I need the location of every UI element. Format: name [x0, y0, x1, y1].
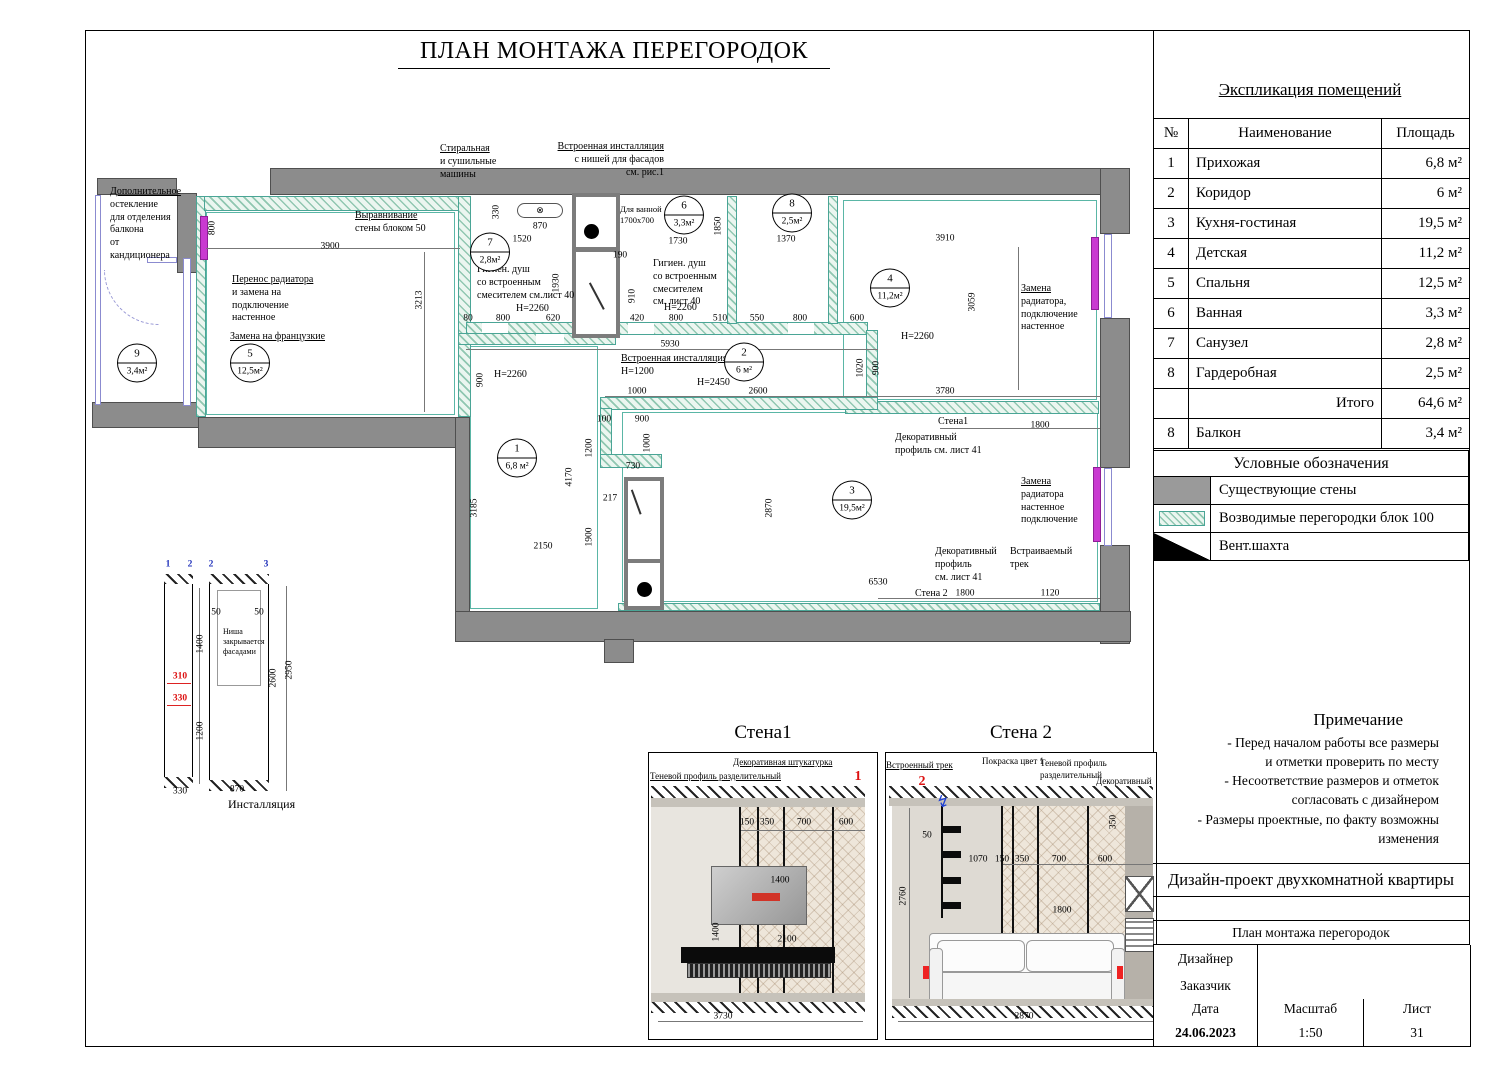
- dimension-label: 3059: [968, 293, 978, 312]
- drawing-sheet: ПЛАН МОНТАЖА ПЕРЕГОРОДОК: [0, 0, 1505, 1066]
- dimension-label: 217: [603, 494, 617, 504]
- floor-band: [892, 999, 1153, 1006]
- dimension-label: 1070: [969, 855, 988, 865]
- annotation-text: Встроенный трек: [886, 760, 966, 772]
- shelf: [941, 851, 961, 858]
- sofa-seat: [937, 972, 1117, 1000]
- dimension-label: 1400: [196, 635, 206, 654]
- dimension-label: 1120: [1041, 589, 1060, 599]
- dimension-label: 2100: [778, 935, 797, 945]
- wall-swatch: [1154, 477, 1210, 504]
- room-marker: 16,8 м²: [497, 439, 537, 478]
- note-line: - Размеры проектные, по факту возможны: [1165, 810, 1439, 829]
- partition-segment: [845, 401, 1099, 414]
- dim-line: [741, 830, 865, 831]
- room-marker: 319,5м²: [832, 481, 872, 520]
- annotation-text: Заменарадиатора,подключениенастенное: [1021, 283, 1083, 334]
- dimension-label: 420: [630, 314, 644, 324]
- window: [1104, 234, 1112, 318]
- wall-segment: [455, 417, 470, 634]
- annotation-text: Н=2260: [664, 302, 710, 315]
- ceiling-band: [889, 798, 1153, 806]
- sofa-cushion: [937, 940, 1025, 972]
- dimension-label: 5930: [661, 340, 680, 350]
- table-row: 8Гардеробная2,5 м²: [1154, 359, 1470, 389]
- hatch-band: [164, 574, 193, 584]
- dimension-label: 1730: [669, 237, 688, 247]
- appliance-front: [1125, 918, 1154, 952]
- room-marker: 82,5м²: [772, 194, 812, 233]
- titleblock-meta-values: 24.06.2023 1:50 31: [1153, 1019, 1471, 1047]
- dimension-label: 870: [533, 222, 547, 232]
- vent-dot: [584, 224, 599, 239]
- client-label: Заказчик: [1154, 972, 1258, 999]
- wall-segment: [198, 417, 458, 448]
- table-cell: 6 м²: [1382, 179, 1470, 209]
- wall-segment: [455, 611, 1131, 642]
- table-cell: Балкон: [1189, 419, 1382, 449]
- dimension-label: 50: [254, 608, 264, 618]
- dimension-label: 800: [669, 314, 683, 324]
- oven-front: [1125, 876, 1154, 912]
- titleblock-empty-row: [1153, 897, 1469, 921]
- table-cell: 7: [1154, 329, 1189, 359]
- dimension-label: 1020: [856, 359, 866, 378]
- radiator: [1091, 237, 1099, 310]
- table-cell: Детская: [1189, 239, 1382, 269]
- french-window: [183, 258, 191, 406]
- dimension-label: 2: [188, 560, 193, 570]
- sheet-value: 31: [1364, 1019, 1470, 1046]
- dimension-label: 1800: [1053, 906, 1072, 916]
- table-cell: 3,4 м²: [1382, 419, 1470, 449]
- page-title: ПЛАН МОНТАЖА ПЕРЕГОРОДОК: [398, 38, 830, 69]
- dimension-label: 700: [797, 818, 811, 828]
- door-opening: [628, 323, 654, 334]
- table-row: 5Спальня12,5 м²: [1154, 269, 1470, 299]
- dimension-label: 3730: [714, 1012, 733, 1022]
- dim-line: [199, 588, 200, 784]
- floor-band: [651, 993, 865, 1002]
- table-row: Итого64,6 м²: [1154, 389, 1470, 419]
- dimension-label: 1: [166, 560, 171, 570]
- partition-swatch: [1159, 511, 1205, 526]
- table-cell: 8: [1154, 419, 1189, 449]
- shelf: [941, 902, 961, 909]
- dim-line: [878, 598, 1100, 599]
- table-header-row: № Наименование Площадь: [1154, 119, 1470, 149]
- dimension-label: 330: [173, 787, 187, 797]
- table-cell: 11,2 м²: [1382, 239, 1470, 269]
- table-row: 6Ванная3,3 м²: [1154, 299, 1470, 329]
- annotation-text: Дополнительноеостеклениедля отделениябал…: [110, 186, 180, 263]
- notes-block: Примечание - Перед началом работы все ра…: [1165, 710, 1455, 848]
- ceiling-hatch: [651, 786, 865, 798]
- red-dim-line: [167, 683, 191, 684]
- table-cell: 5: [1154, 269, 1189, 299]
- red-dim-line: [167, 705, 191, 706]
- media-console: [681, 947, 835, 963]
- dimension-label: 1200: [196, 722, 206, 741]
- annotation-text: Заменарадиаторанастенноеподключение: [1021, 476, 1083, 527]
- wall-segment: [604, 639, 634, 663]
- partition-segment: [204, 196, 460, 211]
- dimension-label: 3910: [936, 234, 955, 244]
- table-cell: 6,8 м²: [1382, 149, 1470, 179]
- dimension-label: 80: [463, 314, 473, 324]
- dimension-label: 330: [492, 205, 502, 219]
- doc-title: План монтажа перегородок: [1232, 925, 1390, 941]
- date-label: Дата: [1154, 999, 1258, 1019]
- sheet-label: Лист: [1364, 999, 1470, 1019]
- table-cell: 4: [1154, 239, 1189, 269]
- dimension-label: 2600: [269, 669, 279, 688]
- dimension-label: 1200: [585, 439, 595, 458]
- profile-line: [832, 807, 834, 996]
- annotation-text: Замена на французкие: [230, 331, 345, 344]
- dimension-label: 1: [855, 770, 862, 784]
- outlet-mark: [1117, 966, 1123, 979]
- dim-line: [286, 586, 287, 791]
- dimension-label: 330: [173, 694, 187, 704]
- annotation-text: Стена 2: [915, 588, 957, 601]
- dimension-label: 50: [211, 608, 221, 618]
- dimension-label: 870: [230, 785, 244, 795]
- dimension-label: 730: [626, 462, 640, 472]
- annotation-text: Встроенная инсталляцияс нишей для фасадо…: [548, 141, 664, 179]
- table-cell: 2,8 м²: [1382, 329, 1470, 359]
- room-marker: 26 м²: [724, 343, 764, 382]
- dimension-label: 2: [209, 560, 214, 570]
- legend-title: Условные обозначения: [1153, 450, 1469, 477]
- table-cell: Гардеробная: [1189, 359, 1382, 389]
- notes-title: Примечание: [1165, 710, 1455, 730]
- dimension-label: 800: [793, 314, 807, 324]
- wall-segment: [1100, 168, 1130, 234]
- dimension-label: 190: [613, 251, 627, 261]
- room-marker: 411,2м²: [870, 269, 910, 308]
- room-marker: 63,3м²: [664, 196, 704, 235]
- annotation-text: Н=2260: [494, 369, 540, 382]
- dimension-label: 350: [1015, 855, 1029, 865]
- annotation-text: Встроенная инсталляцияН=1200: [621, 353, 739, 379]
- titleblock-designer-row: Дизайнер: [1153, 945, 1471, 973]
- designer-label: Дизайнер: [1154, 945, 1258, 972]
- dimension-label: 900: [872, 361, 882, 375]
- hatch-band: [209, 574, 269, 584]
- dimension-label: 900: [476, 373, 486, 387]
- explication-table: № Наименование Площадь 1Прихожая6,8 м²2К…: [1153, 118, 1470, 449]
- partition-segment: [828, 196, 838, 324]
- table-cell: 2: [1154, 179, 1189, 209]
- titleblock-project: Дизайн-проект двухкомнатной квартиры: [1153, 863, 1469, 897]
- dimension-label: 3900: [321, 242, 340, 252]
- dimension-label: 2600: [749, 387, 768, 397]
- annotation-text: Выравниваниестены блоком 50: [355, 210, 439, 236]
- elevation-title-wall1: Стена1: [648, 722, 878, 744]
- table-cell: Кухня-гостиная: [1189, 209, 1382, 239]
- ceiling-band: [651, 798, 865, 807]
- annotation-text: Инсталляция: [228, 797, 320, 812]
- legend-swatch-cell: [1154, 533, 1211, 560]
- table-cell: 12,5 м²: [1382, 269, 1470, 299]
- dimension-label: 1800: [1031, 421, 1050, 431]
- window: [1104, 468, 1112, 546]
- shelf: [941, 877, 961, 884]
- legend-label: Вент.шахта: [1211, 533, 1468, 560]
- window: [95, 195, 101, 405]
- dimension-label: 700: [1052, 855, 1066, 865]
- legend-item: Существующие стены: [1153, 477, 1469, 505]
- dimension-label: 350: [760, 818, 774, 828]
- floor-hatch: [651, 1002, 865, 1013]
- radiator: [1093, 467, 1101, 542]
- dim-line: [658, 1021, 863, 1022]
- dimension-label: 4170: [565, 468, 575, 487]
- outlet-mark: [923, 966, 929, 979]
- dimension-label: 800: [496, 314, 510, 324]
- legend-item: Вент.шахта: [1153, 533, 1469, 561]
- dim-line: [424, 252, 425, 412]
- partition-segment: [600, 397, 878, 410]
- scale-value: 1:50: [1258, 1019, 1364, 1046]
- dimension-label: 6530: [869, 578, 888, 588]
- dimension-label: 50: [922, 831, 932, 841]
- door-opening: [536, 334, 564, 344]
- dim-line: [1018, 247, 1019, 390]
- dimension-label: 310: [173, 672, 187, 682]
- annotation-text: Теневой профиль разделительный: [650, 771, 802, 783]
- legend: Условные обозначения Существующие стеныВ…: [1153, 450, 1469, 561]
- legend-label: Возводимые перегородки блок 100: [1211, 505, 1468, 532]
- titleblock-meta-header: Дата Масштаб Лист: [1153, 999, 1471, 1020]
- wall-segment: [1100, 318, 1130, 468]
- tv-display: [752, 893, 780, 901]
- dimension-label: 3780: [936, 387, 955, 397]
- room-marker: 93,4м²: [117, 344, 157, 383]
- dimension-label: 350: [1109, 815, 1119, 829]
- dimension-label: 2870: [1015, 1012, 1034, 1022]
- sofa-armrest: [929, 948, 943, 1004]
- dimension-label: 600: [850, 314, 864, 324]
- installation-shaft: [572, 193, 620, 338]
- dimension-label: 2870: [765, 499, 775, 518]
- table-cell: [1154, 389, 1189, 419]
- table-cell: 64,6 м²: [1382, 389, 1470, 419]
- table-row: 3Кухня-гостиная19,5 м²: [1154, 209, 1470, 239]
- dimension-label: 1000: [628, 387, 647, 397]
- table-cell: Коридор: [1189, 179, 1382, 209]
- col-header-name: Наименование: [1189, 119, 1382, 149]
- designer-value: [1258, 945, 1470, 972]
- table-cell: 1: [1154, 149, 1189, 179]
- dim-line: [909, 808, 910, 998]
- console-front: [687, 963, 831, 978]
- dimension-label: 150: [740, 818, 754, 828]
- table-cell: 8: [1154, 359, 1189, 389]
- annotation-text: Декоративный: [1096, 776, 1154, 788]
- elevation-title-wall2: Стена 2: [885, 722, 1157, 744]
- dimension-label: 1850: [714, 217, 724, 236]
- vent-swatch: [1154, 533, 1210, 560]
- table-row: 1Прихожая6,8 м²: [1154, 149, 1470, 179]
- dimension-label: 1000: [643, 434, 653, 453]
- table-cell: Итого: [1189, 389, 1382, 419]
- dimension-label: 3213: [415, 291, 425, 310]
- date-value: 24.06.2023: [1154, 1019, 1258, 1046]
- scale-label: Масштаб: [1258, 999, 1364, 1019]
- annotation-text: Н=2260: [516, 303, 562, 316]
- dimension-label: 2150: [534, 542, 553, 552]
- annotation-text: Нишазакрываетсяфасадами: [223, 627, 269, 658]
- dimension-label: 600: [1098, 855, 1112, 865]
- door-opening: [788, 323, 814, 334]
- table-row: 8Балкон3,4 м²: [1154, 419, 1470, 449]
- dimension-label: 2760: [899, 887, 909, 906]
- vent-dot: [637, 582, 652, 597]
- dimension-label: 510: [713, 314, 727, 324]
- dimension-label: 1400: [712, 923, 722, 942]
- annotation-text: Декоративныйпрофиль см. лист 41: [895, 432, 993, 458]
- dimension-label: 1900: [585, 528, 595, 547]
- explication-title: Экспликация помещений: [1160, 80, 1460, 100]
- dimension-label: 2950: [285, 661, 295, 680]
- table-row: 7Санузел2,8 м²: [1154, 329, 1470, 359]
- dimension-label: 100: [597, 415, 611, 425]
- project-name: Дизайн-проект двухкомнатной квартиры: [1168, 870, 1454, 890]
- wall-segment: [270, 168, 1103, 195]
- legend-swatch-cell: [1154, 505, 1211, 532]
- dimension-label: 550: [750, 314, 764, 324]
- table-row: 4Детская11,2 м²: [1154, 239, 1470, 269]
- table-cell: Санузел: [1189, 329, 1382, 359]
- note-line: изменения: [1165, 829, 1439, 848]
- dimension-label: 1520: [513, 235, 532, 245]
- note-line: и отметки проверить по месту: [1165, 752, 1439, 771]
- titleblock-client-row: Заказчик: [1153, 972, 1471, 1000]
- dimension-label: 1370: [777, 235, 796, 245]
- table-cell: 3,3 м²: [1382, 299, 1470, 329]
- dimension-label: 3: [264, 560, 269, 570]
- col-header-num: №: [1154, 119, 1189, 149]
- table-cell: Прихожая: [1189, 149, 1382, 179]
- table-row: 2Коридор6 м²: [1154, 179, 1470, 209]
- annotation-text: Стиральнаяи сушильныемашины: [440, 143, 504, 181]
- dimension-label: 2: [919, 775, 926, 789]
- annotation-text: Стена1: [938, 416, 980, 429]
- note-line: - Несоответствие размеров и отметок: [1165, 771, 1439, 790]
- room-marker: 72,8м²: [470, 233, 510, 272]
- annotation-text: Декоративная штукатурка: [733, 757, 857, 769]
- shelf: [941, 826, 961, 833]
- table-cell: 2,5 м²: [1382, 359, 1470, 389]
- dimension-label: 3185: [470, 499, 480, 518]
- sofa-cushion: [1026, 940, 1114, 972]
- partition-segment: [727, 196, 737, 324]
- dimension-label: 1800: [956, 589, 975, 599]
- table-cell: 6: [1154, 299, 1189, 329]
- room-outline: [470, 346, 598, 609]
- annotation-text: Н=2260: [901, 331, 947, 344]
- note-line: согласовать с дизайнером: [1165, 790, 1439, 809]
- room-marker: 512,5м²: [230, 344, 270, 383]
- dimension-label: 1400: [771, 876, 790, 886]
- dimension-label: 900: [635, 415, 649, 425]
- partition-segment: [618, 603, 1100, 611]
- legend-swatch-cell: [1154, 477, 1211, 504]
- annotation-text: Перенос радиатораи замена наподключениен…: [232, 274, 320, 325]
- table-cell: 19,5 м²: [1382, 209, 1470, 239]
- col-header-area: Площадь: [1382, 119, 1470, 149]
- legend-label: Существующие стены: [1211, 477, 1468, 504]
- washing-machine-icon: ⊗: [517, 203, 563, 218]
- dimension-label: 800: [208, 221, 218, 235]
- titleblock-doc-row: План монтажа перегородок: [1153, 921, 1469, 945]
- table-cell: 3: [1154, 209, 1189, 239]
- table-cell: Спальня: [1189, 269, 1382, 299]
- annotation-text: Встраиваемыйтрек: [1010, 546, 1078, 572]
- client-value: [1258, 972, 1470, 999]
- dimension-label: 600: [839, 818, 853, 828]
- annotation-text: Декоративныйпрофильсм. лист 41: [935, 546, 997, 584]
- table-cell: Ванная: [1189, 299, 1382, 329]
- dimension-label: 150: [995, 855, 1009, 865]
- partition-segment: [458, 196, 471, 417]
- dimension-label: 910: [628, 289, 638, 303]
- ceiling-hatch: [889, 786, 1153, 798]
- note-line: - Перед началом работы все размеры: [1165, 733, 1439, 752]
- dim-line: [605, 396, 1100, 397]
- legend-item: Возводимые перегородки блок 100: [1153, 505, 1469, 533]
